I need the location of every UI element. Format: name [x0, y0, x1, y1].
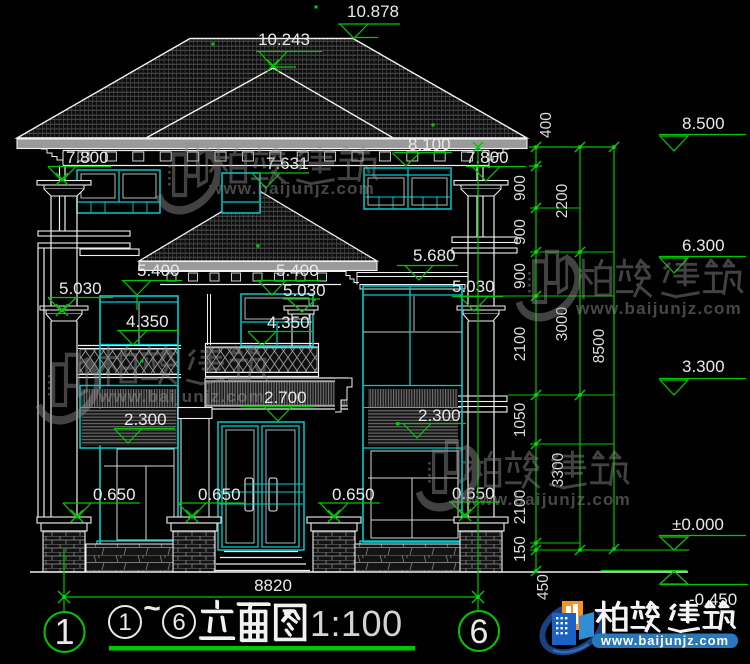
svg-text:0.650: 0.650 [332, 485, 375, 504]
svg-text:900: 900 [512, 175, 529, 201]
svg-text:6: 6 [470, 613, 489, 651]
svg-text:3.300: 3.300 [682, 357, 725, 376]
svg-text:1050: 1050 [512, 402, 529, 437]
svg-text:6: 6 [172, 609, 185, 636]
svg-text:6.300: 6.300 [682, 236, 725, 255]
svg-text:0.650: 0.650 [93, 485, 136, 504]
svg-text:1:100: 1:100 [310, 603, 403, 644]
svg-text:10.878: 10.878 [347, 2, 399, 21]
svg-text:400: 400 [538, 112, 555, 138]
svg-text:2.300: 2.300 [418, 406, 461, 425]
svg-text:4.350: 4.350 [267, 313, 310, 332]
svg-text:2.700: 2.700 [264, 388, 307, 407]
svg-text:5.030: 5.030 [283, 281, 326, 300]
svg-text:2200: 2200 [554, 183, 571, 218]
svg-text:5.400: 5.400 [137, 261, 180, 280]
svg-text:7.800: 7.800 [466, 148, 509, 167]
svg-text:8500: 8500 [591, 328, 608, 363]
svg-text:1: 1 [118, 609, 131, 636]
svg-text:900: 900 [512, 219, 529, 245]
svg-text:2.300: 2.300 [124, 410, 167, 429]
svg-text:8820: 8820 [254, 576, 292, 595]
svg-text:www.baijunjz.com: www.baijunjz.com [98, 387, 265, 406]
svg-text:150: 150 [512, 536, 529, 562]
svg-text:www.baijunjz.com: www.baijunjz.com [208, 179, 375, 198]
svg-text:~: ~ [143, 592, 161, 625]
svg-text:www.baijunjz.com: www.baijunjz.com [575, 299, 742, 318]
svg-text:4.350: 4.350 [126, 312, 169, 331]
svg-text:5.400: 5.400 [276, 261, 319, 280]
svg-text:450: 450 [535, 574, 552, 600]
svg-text:www.baijunjz.com: www.baijunjz.com [600, 633, 729, 648]
svg-text:5.030: 5.030 [59, 279, 102, 298]
svg-text:5.030: 5.030 [452, 277, 495, 296]
svg-text:www.baijunjz.com: www.baijunjz.com [464, 490, 631, 509]
svg-text:900: 900 [512, 263, 529, 289]
svg-text:1: 1 [54, 611, 74, 652]
svg-text:±0.000: ±0.000 [672, 515, 724, 534]
svg-text:8.100: 8.100 [408, 135, 451, 154]
svg-text:0.650: 0.650 [198, 485, 241, 504]
svg-text:5.680: 5.680 [413, 246, 456, 265]
svg-text:10.243: 10.243 [258, 30, 310, 49]
svg-text:8.500: 8.500 [682, 114, 725, 133]
svg-text:7.800: 7.800 [66, 148, 109, 167]
svg-text:2100: 2100 [512, 326, 529, 361]
